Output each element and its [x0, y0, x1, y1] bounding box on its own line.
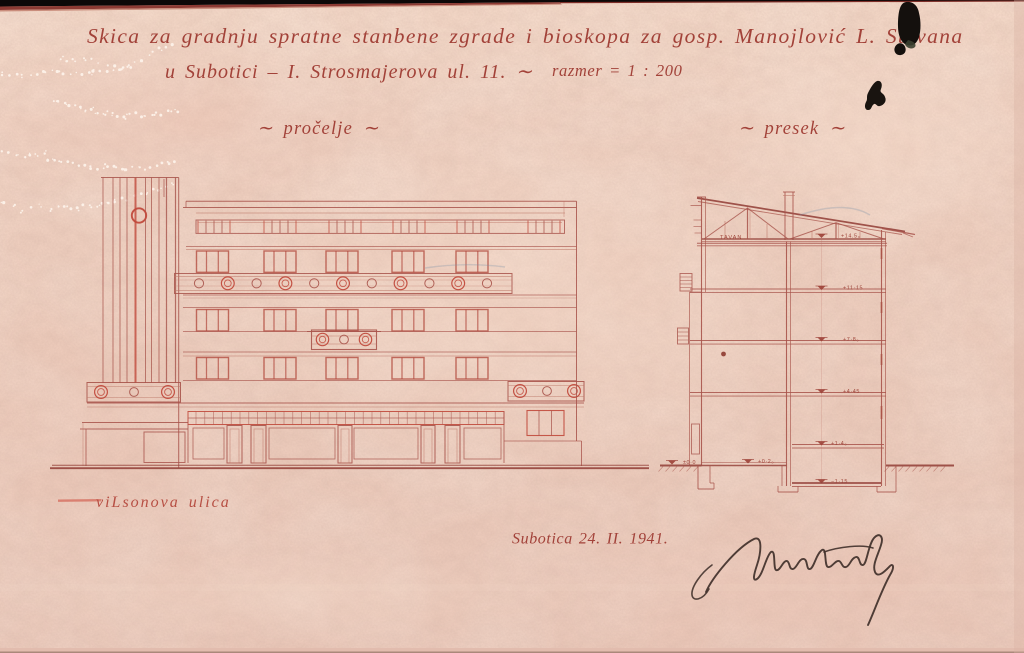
svg-text:viLsonova ulica: viLsonova ulica [96, 494, 231, 511]
svg-text:+14.5₀: +14.5₀ [841, 234, 860, 240]
svg-text:∼ presek ∼: ∼ presek ∼ [738, 119, 846, 139]
svg-text:+11·15: +11·15 [843, 286, 863, 292]
svg-text:razmer = 1 : 200: razmer = 1 : 200 [552, 61, 683, 80]
svg-text:u Subotici – I. Strosmajerov: u Subotici – I. Strosmajerova ul. 11. ∼ [165, 61, 533, 83]
svg-text:+1·4₀: +1·4₀ [831, 441, 847, 447]
svg-text:+0·2₀: +0·2₀ [758, 459, 774, 465]
svg-text:−1·15: −1·15 [831, 479, 848, 485]
svg-text:+4·45: +4·45 [843, 389, 860, 395]
svg-text:∼ pročelje ∼: ∼ pročelje ∼ [257, 119, 380, 139]
svg-text:+7·8₀: +7·8₀ [843, 337, 859, 343]
svg-text:TAVAN: TAVAN [720, 235, 742, 241]
svg-text:Skica za gradnju spratne s: Skica za gradnju spratne stanbene zgrade… [87, 24, 963, 48]
svg-text:±0·0: ±0·0 [683, 460, 696, 466]
svg-text:Subotica 24. II. 1941.: Subotica 24. II. 1941. [512, 531, 668, 548]
